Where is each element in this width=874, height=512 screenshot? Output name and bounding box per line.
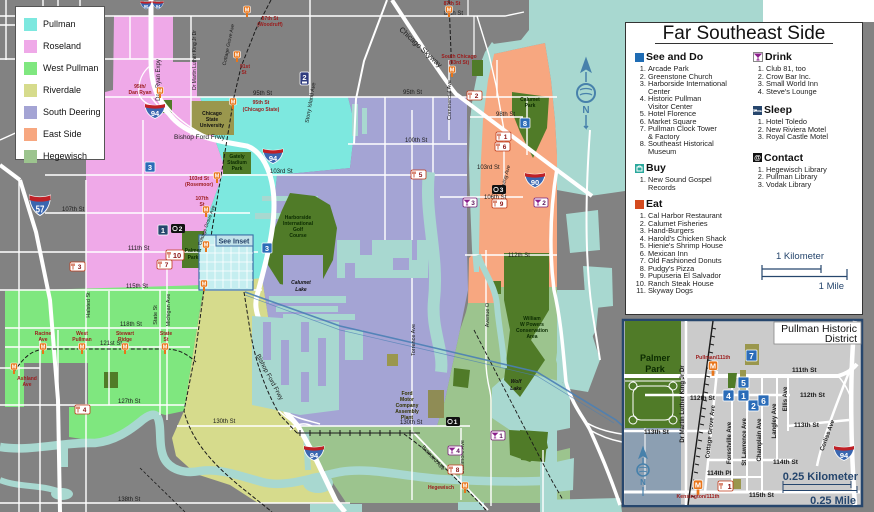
svg-text:6: 6: [761, 396, 766, 406]
svg-text:2: 2: [302, 73, 306, 82]
svg-text:130th St: 130th St: [213, 419, 236, 425]
svg-text:St: St: [242, 70, 247, 76]
svg-text:3: 3: [78, 264, 82, 271]
svg-text:111th St: 111th St: [128, 246, 150, 252]
svg-text:7: 7: [165, 262, 169, 269]
svg-text:138th St: 138th St: [118, 497, 141, 503]
svg-text:Ellis Ave: Ellis Ave: [783, 386, 789, 411]
svg-text:95th St: 95th St: [253, 100, 270, 106]
svg-text:N: N: [640, 478, 646, 487]
svg-text:10: 10: [173, 251, 181, 260]
svg-text:Pullman/111th: Pullman/111th: [696, 355, 731, 361]
svg-text:Park: Park: [525, 103, 536, 109]
svg-text:(93rd St): (93rd St): [449, 60, 470, 66]
svg-text:127th St: 127th St: [118, 399, 141, 405]
svg-text:Bishop Ford Frwy: Bishop Ford Frwy: [174, 134, 226, 141]
svg-text:2: 2: [475, 93, 479, 100]
svg-text:1: 1: [504, 134, 508, 141]
svg-text:2: 2: [179, 226, 183, 233]
svg-text:1: 1: [454, 419, 458, 426]
svg-text:State St: State St: [153, 305, 159, 325]
svg-text:Hegewisch: Hegewisch: [428, 485, 454, 491]
svg-text:1: 1: [161, 226, 165, 235]
svg-text:St: St: [164, 337, 169, 343]
svg-text:112th St: 112th St: [508, 253, 530, 259]
svg-text:Area: Area: [526, 334, 537, 340]
svg-text:8: 8: [523, 119, 527, 128]
svg-text:1: 1: [499, 433, 503, 440]
svg-text:2: 2: [751, 401, 756, 411]
svg-text:112th St: 112th St: [690, 395, 716, 402]
svg-text:Ridge: Ridge: [118, 337, 132, 343]
svg-text:5: 5: [741, 378, 746, 388]
svg-text:Park: Park: [232, 166, 243, 172]
svg-text:2: 2: [542, 200, 546, 207]
svg-text:District: District: [825, 333, 857, 345]
svg-text:Torrence Ave: Torrence Ave: [411, 324, 417, 356]
svg-text:95th St: 95th St: [403, 90, 422, 96]
svg-text:103rd St: 103rd St: [477, 165, 500, 171]
svg-text:9: 9: [500, 201, 504, 208]
svg-text:Avenue O: Avenue O: [485, 302, 491, 327]
svg-text:Dan Ryan: Dan Ryan: [128, 90, 151, 96]
svg-text:(Woodruff): (Woodruff): [257, 22, 283, 28]
svg-text:Palmer: Palmer: [185, 248, 202, 254]
svg-text:Plant: Plant: [401, 415, 414, 421]
svg-text:3: 3: [265, 244, 269, 253]
svg-text:Palmer: Palmer: [640, 353, 671, 363]
svg-text:Kensington/111th: Kensington/111th: [677, 494, 720, 500]
svg-text:4: 4: [726, 391, 731, 401]
svg-text:Calumet: Calumet: [291, 280, 311, 286]
svg-text:4: 4: [83, 407, 87, 414]
svg-text:8: 8: [456, 467, 460, 474]
svg-text:Commercial Ave: Commercial Ave: [447, 80, 453, 120]
svg-text:Halsted St: Halsted St: [86, 292, 92, 318]
svg-text:Dr Martin Luther King Jr Dr: Dr Martin Luther King Jr Dr: [192, 30, 198, 90]
svg-text:98th St: 98th St: [496, 112, 515, 118]
svg-text:3: 3: [471, 200, 475, 207]
svg-text:6: 6: [503, 144, 507, 151]
svg-text:3: 3: [148, 163, 152, 172]
svg-text:See Inset: See Inset: [219, 239, 250, 246]
svg-text:@: @: [754, 155, 761, 162]
svg-text:112th St: 112th St: [800, 392, 826, 399]
svg-text:113th St: 113th St: [644, 429, 670, 436]
svg-text:Ave: Ave: [23, 382, 32, 388]
svg-text:0.25 Kilometer: 0.25 Kilometer: [783, 471, 859, 483]
svg-text:Course: Course: [289, 233, 306, 239]
svg-text:1: 1: [741, 391, 746, 401]
svg-text:N: N: [582, 105, 589, 116]
svg-text:114th St: 114th St: [773, 459, 799, 466]
svg-text:(Rosemoor): (Rosemoor): [185, 182, 213, 188]
svg-text:Wolf: Wolf: [511, 379, 523, 385]
svg-text:4: 4: [456, 448, 460, 455]
svg-text:115th St: 115th St: [749, 492, 775, 499]
svg-text:103rd St: 103rd St: [270, 169, 293, 175]
svg-text:1: 1: [728, 482, 732, 491]
svg-text:Ave: Ave: [39, 337, 48, 343]
svg-text:Champlain Ave: Champlain Ave: [757, 418, 763, 462]
svg-text:3: 3: [500, 187, 504, 194]
svg-text:118th St: 118th St: [120, 322, 142, 328]
svg-text:(Chicago State): (Chicago State): [243, 107, 280, 113]
svg-text:95th St: 95th St: [253, 91, 272, 97]
svg-text:Park: Park: [188, 255, 199, 261]
svg-text:Lake: Lake: [510, 386, 522, 392]
svg-text:Lake: Lake: [295, 287, 307, 293]
svg-text:111th St: 111th St: [792, 367, 817, 374]
svg-text:Michigan Ave: Michigan Ave: [166, 294, 172, 327]
svg-text:Forestville Ave: Forestville Ave: [727, 421, 733, 464]
svg-text:University: University: [200, 123, 224, 129]
svg-text:Dr Martin Luther King Jr Dr: Dr Martin Luther King Jr Dr: [680, 365, 686, 443]
svg-text:5: 5: [419, 172, 423, 179]
svg-text:107th St: 107th St: [62, 207, 85, 213]
svg-text:Pullman: Pullman: [72, 337, 91, 343]
svg-text:Park: Park: [645, 364, 666, 374]
svg-text:115th St: 115th St: [126, 284, 148, 290]
svg-text:St Lawrence Ave: St Lawrence Ave: [742, 418, 748, 466]
svg-text:1 Mile: 1 Mile: [819, 281, 844, 292]
svg-text:114th Pl: 114th Pl: [707, 470, 732, 477]
svg-text:0.25 Mile: 0.25 Mile: [810, 495, 856, 507]
svg-text:7: 7: [749, 351, 754, 361]
svg-text:113th St: 113th St: [794, 422, 820, 429]
svg-text:Langley Ave: Langley Ave: [772, 403, 778, 439]
svg-text:1 Kilometer: 1 Kilometer: [776, 251, 824, 262]
svg-text:100th St: 100th St: [405, 138, 428, 144]
